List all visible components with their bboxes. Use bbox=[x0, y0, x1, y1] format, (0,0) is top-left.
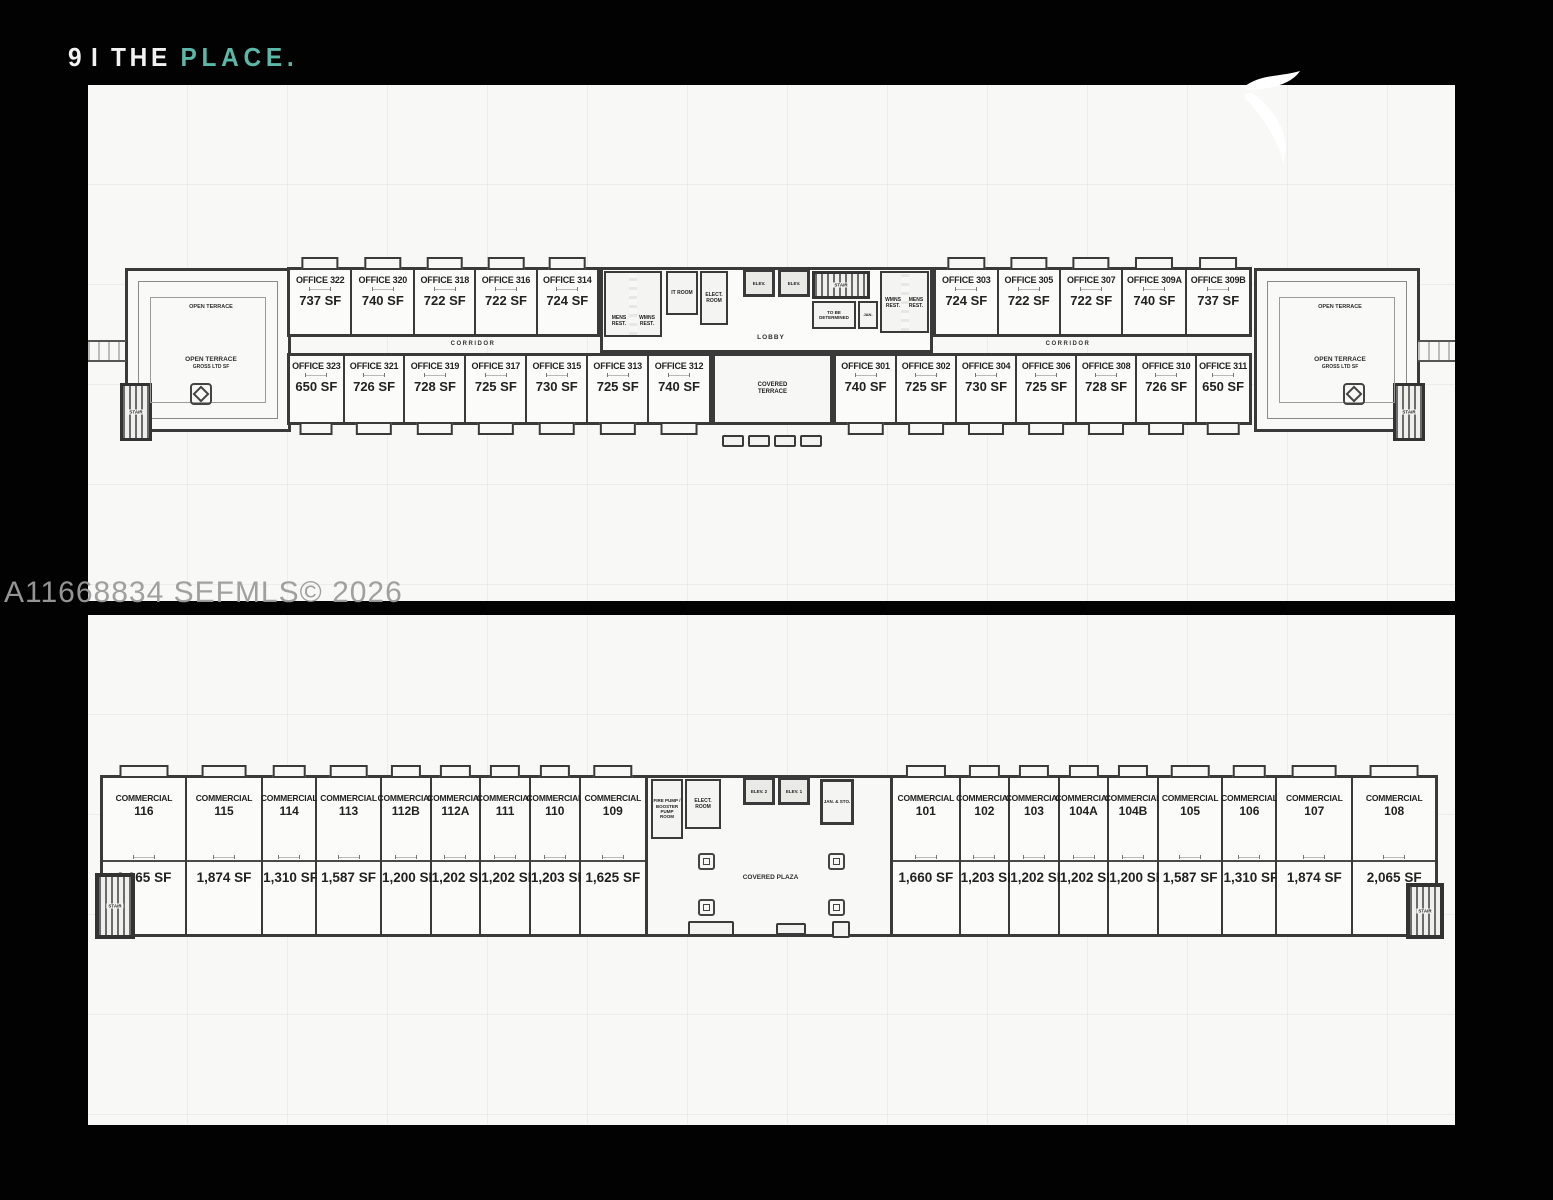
swoosh-logo-icon bbox=[1238, 70, 1304, 166]
planter bbox=[800, 435, 822, 447]
room-area: 730 SF bbox=[536, 379, 578, 394]
commercial-row-left: COMMERCIAL1162,065 SFCOMMERCIAL1151,874 … bbox=[100, 775, 648, 937]
dimension-mark bbox=[1212, 373, 1234, 377]
room-office-312: OFFICE 312740 SF bbox=[649, 356, 709, 422]
to-be-determined-room: TO BE DETERMINED bbox=[812, 301, 856, 329]
covered-plaza-label: COVERED PLAZA bbox=[723, 873, 818, 882]
room-label: COMMERCIAL104B bbox=[1105, 778, 1162, 819]
room-label: OFFICE 315 bbox=[532, 361, 581, 371]
room-area: 724 SF bbox=[945, 293, 987, 308]
room-area: 1,587 SF bbox=[1159, 860, 1222, 934]
dimension-mark bbox=[1207, 287, 1229, 291]
room-label: OFFICE 319 bbox=[411, 361, 460, 371]
planter bbox=[832, 921, 850, 938]
room-office-315: OFFICE 315730 SF bbox=[527, 356, 588, 422]
stair-left: STAIR bbox=[120, 383, 152, 441]
room-area: 1,200 SF bbox=[1109, 860, 1156, 934]
room-commercial-115: COMMERCIAL1151,874 SF bbox=[187, 778, 263, 934]
dimension-mark bbox=[915, 373, 937, 377]
walkway-pier-right bbox=[1418, 340, 1455, 362]
mls-watermark: A11668834 SEFMLS© 2026 bbox=[4, 576, 403, 610]
room-area: 1,660 SF bbox=[893, 860, 959, 934]
room-label: OFFICE 311 bbox=[1199, 361, 1247, 371]
room-area: 725 SF bbox=[1025, 379, 1067, 394]
room-commercial-114: COMMERCIAL1141,310 SF bbox=[263, 778, 317, 934]
room-label: OFFICE 313 bbox=[593, 361, 642, 371]
dimension-mark bbox=[444, 855, 466, 859]
dimension-mark bbox=[1238, 855, 1260, 859]
room-label: OFFICE 320 bbox=[359, 275, 408, 285]
janitor-storage-room: JAN. & STO. bbox=[820, 779, 854, 825]
dimension-mark bbox=[1122, 855, 1144, 859]
column-icon bbox=[828, 853, 845, 870]
room-label: OFFICE 308 bbox=[1082, 361, 1131, 371]
elevator-icon: ELEV. 2 bbox=[743, 777, 775, 805]
room-area: 722 SF bbox=[485, 293, 527, 308]
office-row-bottom-left: OFFICE 323650 SFOFFICE 321726 SFOFFICE 3… bbox=[287, 353, 712, 425]
room-label: COMMERCIAL101 bbox=[898, 778, 955, 819]
room-label: COMMERCIAL108 bbox=[1366, 778, 1423, 819]
room-area: 725 SF bbox=[475, 379, 517, 394]
room-area: 1,202 SF bbox=[1060, 860, 1108, 934]
room-area: 724 SF bbox=[546, 293, 588, 308]
elevator-bank: ELEV. ELEV. bbox=[743, 269, 810, 297]
room-commercial-104a: COMMERCIAL104A1,202 SF bbox=[1060, 778, 1110, 934]
room-label: COMMERCIAL104A bbox=[1055, 778, 1112, 819]
room-label: COMMERCIAL116 bbox=[116, 778, 173, 819]
room-area: 722 SF bbox=[1008, 293, 1050, 308]
room-area: 737 SF bbox=[1197, 293, 1239, 308]
room-commercial-111: COMMERCIAL1111,202 SF bbox=[481, 778, 531, 934]
covered-terrace: COVERED TERRACE bbox=[712, 353, 833, 425]
planter bbox=[748, 435, 770, 447]
dimension-mark bbox=[556, 287, 578, 291]
room-area: 1,200 SF bbox=[382, 860, 430, 934]
room-office-318: OFFICE 318722 SF bbox=[415, 270, 476, 334]
room-area: 728 SF bbox=[414, 379, 456, 394]
column-ornament-icon bbox=[1343, 383, 1365, 405]
room-area: 722 SF bbox=[1070, 293, 1112, 308]
it-room: IT ROOM bbox=[666, 271, 698, 315]
room-office-319: OFFICE 319728 SF bbox=[405, 356, 466, 422]
column-icon bbox=[698, 853, 715, 870]
dimension-mark bbox=[544, 855, 566, 859]
title-divider: I bbox=[91, 42, 102, 73]
room-area: 725 SF bbox=[597, 379, 639, 394]
lobby-label: LOBBY bbox=[736, 333, 806, 342]
open-terrace-label: OPEN TERRACE GROSS LTD SF bbox=[146, 355, 276, 371]
title-accent: PLACE. bbox=[181, 42, 299, 72]
room-label: COMMERCIAL115 bbox=[196, 778, 253, 819]
room-commercial-107: COMMERCIAL1071,874 SF bbox=[1277, 778, 1353, 934]
room-label: COMMERCIAL110 bbox=[526, 778, 583, 819]
room-office-316: OFFICE 316722 SF bbox=[476, 270, 537, 334]
dimension-mark bbox=[602, 855, 624, 859]
stair-left: STAIR bbox=[95, 873, 135, 939]
room-label: OFFICE 316 bbox=[482, 275, 531, 285]
dimension-mark bbox=[668, 373, 690, 377]
dimension-mark bbox=[1179, 855, 1201, 859]
room-area: 1,874 SF bbox=[187, 860, 261, 934]
room-label: OFFICE 309A bbox=[1127, 275, 1182, 285]
dimension-mark bbox=[1035, 373, 1057, 377]
room-commercial-112b: COMMERCIAL112B1,200 SF bbox=[382, 778, 432, 934]
core-stair: STAIR bbox=[812, 271, 870, 299]
title-word: THE bbox=[111, 42, 171, 72]
room-area: 1,202 SF bbox=[1010, 860, 1058, 934]
room-label: OFFICE 317 bbox=[472, 361, 521, 371]
page-title: 9ITHEPLACE. bbox=[68, 42, 298, 73]
room-area: 726 SF bbox=[353, 379, 395, 394]
title-number: 9 bbox=[68, 42, 85, 72]
room-commercial-109: COMMERCIAL1091,625 SF bbox=[581, 778, 645, 934]
room-office-322: OFFICE 322737 SF bbox=[290, 270, 352, 334]
room-label: COMMERCIAL112A bbox=[427, 778, 484, 819]
dimension-mark bbox=[338, 855, 360, 859]
room-office-305: OFFICE 305722 SF bbox=[999, 270, 1061, 334]
elect-room: ELECT. ROOM bbox=[685, 779, 721, 829]
dimension-mark bbox=[309, 287, 331, 291]
room-office-309a: OFFICE 309A740 SF bbox=[1123, 270, 1187, 334]
room-label: OFFICE 307 bbox=[1067, 275, 1116, 285]
dimension-mark bbox=[915, 855, 937, 859]
dimension-mark bbox=[1073, 855, 1095, 859]
elect-room: ELECT. ROOM bbox=[700, 271, 728, 325]
room-office-323: OFFICE 323650 SF bbox=[290, 356, 345, 422]
column-ornament-icon bbox=[190, 383, 212, 405]
column-icon bbox=[828, 899, 845, 916]
room-label: OFFICE 321 bbox=[350, 361, 399, 371]
room-commercial-105: COMMERCIAL1051,587 SF bbox=[1159, 778, 1224, 934]
room-label: OFFICE 301 bbox=[841, 361, 890, 371]
walkway-pier-left bbox=[88, 340, 126, 362]
room-area: 728 SF bbox=[1085, 379, 1127, 394]
dimension-mark bbox=[975, 373, 997, 377]
room-office-314: OFFICE 314724 SF bbox=[538, 270, 597, 334]
room-office-304: OFFICE 304730 SF bbox=[957, 356, 1017, 422]
room-label: COMMERCIAL107 bbox=[1286, 778, 1343, 819]
dimension-mark bbox=[434, 287, 456, 291]
open-terrace-label: OPEN TERRACE bbox=[1285, 304, 1395, 312]
room-commercial-104b: COMMERCIAL104B1,200 SF bbox=[1109, 778, 1158, 934]
room-label: OFFICE 304 bbox=[962, 361, 1011, 371]
dimension-mark bbox=[855, 373, 877, 377]
room-office-303: OFFICE 303724 SF bbox=[936, 270, 999, 334]
room-area: 725 SF bbox=[905, 379, 947, 394]
elevator-icon: ELEV. bbox=[778, 269, 810, 297]
dimension-mark bbox=[495, 287, 517, 291]
room-label: COMMERCIAL113 bbox=[320, 778, 377, 819]
room-area: 1,587 SF bbox=[317, 860, 380, 934]
commercial-floor-plan-sheet: COMMERCIAL1162,065 SFCOMMERCIAL1151,874 … bbox=[88, 615, 1455, 1125]
restrooms-east: WMNS REST. MENS REST. bbox=[880, 271, 929, 333]
room-area: 722 SF bbox=[424, 293, 466, 308]
room-area: 650 SF bbox=[1202, 379, 1244, 394]
room-office-308: OFFICE 308728 SF bbox=[1077, 356, 1137, 422]
room-area: 1,874 SF bbox=[1277, 860, 1351, 934]
dimension-mark bbox=[1155, 373, 1177, 377]
dimension-mark bbox=[305, 373, 327, 377]
elevator-bank: ELEV. 2 ELEV. 1 bbox=[743, 777, 810, 805]
dimension-mark bbox=[1018, 287, 1040, 291]
stair-right: STAIR bbox=[1406, 883, 1444, 939]
right-terrace-wing: OPEN TERRACE OPEN TERRACE GROSS LTD SF S… bbox=[1254, 268, 1420, 432]
dimension-mark bbox=[973, 855, 995, 859]
room-commercial-110: COMMERCIAL1101,203 SF bbox=[531, 778, 581, 934]
dimension-mark bbox=[395, 855, 417, 859]
dimension-mark bbox=[607, 373, 629, 377]
room-area: 740 SF bbox=[1133, 293, 1175, 308]
office-row-top-left: OFFICE 322737 SFOFFICE 320740 SFOFFICE 3… bbox=[287, 267, 600, 337]
room-label: COMMERCIAL105 bbox=[1162, 778, 1219, 819]
open-terrace-label: OPEN TERRACE bbox=[156, 304, 266, 312]
office-row-bottom-right: OFFICE 301740 SFOFFICE 302725 SFOFFICE 3… bbox=[833, 353, 1252, 425]
dimension-mark bbox=[213, 855, 235, 859]
room-office-302: OFFICE 302725 SF bbox=[897, 356, 957, 422]
dimension-mark bbox=[1023, 855, 1045, 859]
room-area: 650 SF bbox=[295, 379, 337, 394]
room-office-320: OFFICE 320740 SF bbox=[352, 270, 415, 334]
dimension-mark bbox=[363, 373, 385, 377]
left-terrace-wing: OPEN TERRACE OPEN TERRACE GROSS LTD SF S… bbox=[125, 268, 291, 432]
room-area: 737 SF bbox=[299, 293, 341, 308]
janitor-room: JAN. bbox=[858, 301, 878, 329]
room-commercial-102: COMMERCIAL1021,203 SF bbox=[961, 778, 1011, 934]
room-area: 730 SF bbox=[965, 379, 1007, 394]
planter bbox=[776, 923, 806, 935]
room-label: COMMERCIAL112B bbox=[378, 778, 435, 819]
room-label: OFFICE 318 bbox=[421, 275, 470, 285]
room-label: OFFICE 302 bbox=[902, 361, 951, 371]
room-label: COMMERCIAL109 bbox=[585, 778, 642, 819]
room-label: OFFICE 305 bbox=[1005, 275, 1054, 285]
room-office-307: OFFICE 307722 SF bbox=[1061, 270, 1123, 334]
room-office-306: OFFICE 306725 SF bbox=[1017, 356, 1077, 422]
room-office-317: OFFICE 317725 SF bbox=[466, 356, 527, 422]
room-office-321: OFFICE 321726 SF bbox=[345, 356, 406, 422]
room-area: 1,203 SF bbox=[531, 860, 579, 934]
restrooms-west: MENS REST. WMNS REST. bbox=[604, 271, 662, 337]
commercial-row-right: COMMERCIAL1011,660 SFCOMMERCIAL1021,203 … bbox=[890, 775, 1438, 937]
room-label: COMMERCIAL106 bbox=[1221, 778, 1278, 819]
room-label: COMMERCIAL102 bbox=[956, 778, 1013, 819]
room-area: 726 SF bbox=[1145, 379, 1187, 394]
dimension-mark bbox=[1303, 855, 1325, 859]
planter bbox=[774, 435, 796, 447]
planter bbox=[688, 921, 734, 936]
room-area: 740 SF bbox=[362, 293, 404, 308]
room-label: OFFICE 322 bbox=[296, 275, 345, 285]
corridor-label-left: CORRIDOR bbox=[398, 341, 548, 347]
room-label: OFFICE 310 bbox=[1142, 361, 1191, 371]
dimension-mark bbox=[955, 287, 977, 291]
dimension-mark bbox=[1143, 287, 1165, 291]
room-area: 1,202 SF bbox=[432, 860, 480, 934]
room-label: OFFICE 312 bbox=[655, 361, 704, 371]
dimension-mark bbox=[278, 855, 300, 859]
room-commercial-103: COMMERCIAL1031,202 SF bbox=[1010, 778, 1060, 934]
dimension-mark bbox=[1095, 373, 1117, 377]
room-office-301: OFFICE 301740 SF bbox=[836, 356, 897, 422]
column-icon bbox=[698, 899, 715, 916]
room-office-309b: OFFICE 309B737 SF bbox=[1187, 270, 1249, 334]
room-label: OFFICE 303 bbox=[942, 275, 991, 285]
room-label: COMMERCIAL114 bbox=[261, 778, 318, 819]
room-area: 740 SF bbox=[658, 379, 700, 394]
room-label: COMMERCIAL111 bbox=[477, 778, 534, 819]
room-commercial-112a: COMMERCIAL112A1,202 SF bbox=[432, 778, 482, 934]
open-terrace-label: OPEN TERRACE GROSS LTD SF bbox=[1275, 355, 1405, 371]
dimension-mark bbox=[372, 287, 394, 291]
room-office-313: OFFICE 313725 SF bbox=[588, 356, 649, 422]
elevator-icon: ELEV. bbox=[743, 269, 775, 297]
dimension-mark bbox=[424, 373, 446, 377]
corridor-label-right: CORRIDOR bbox=[993, 341, 1143, 347]
room-commercial-113: COMMERCIAL1131,587 SF bbox=[317, 778, 382, 934]
room-area: 1,625 SF bbox=[581, 860, 645, 934]
room-area: 740 SF bbox=[845, 379, 887, 394]
room-office-310: OFFICE 310726 SF bbox=[1137, 356, 1197, 422]
room-label: COMMERCIAL103 bbox=[1006, 778, 1063, 819]
fire-pump-room: FIRE PUMP / BOOSTER PUMP ROOM bbox=[651, 779, 683, 839]
room-label: OFFICE 309B bbox=[1191, 275, 1246, 285]
room-label: OFFICE 323 bbox=[292, 361, 341, 371]
dimension-mark bbox=[485, 373, 507, 377]
dimension-mark bbox=[133, 855, 155, 859]
dimension-mark bbox=[1383, 855, 1405, 859]
stair-right: STAIR bbox=[1393, 383, 1425, 441]
room-office-311: OFFICE 311650 SF bbox=[1197, 356, 1249, 422]
dimension-mark bbox=[546, 373, 568, 377]
room-label: OFFICE 306 bbox=[1022, 361, 1071, 371]
room-commercial-106: COMMERCIAL1061,310 SF bbox=[1223, 778, 1277, 934]
dimension-mark bbox=[1080, 287, 1102, 291]
room-commercial-101: COMMERCIAL1011,660 SF bbox=[893, 778, 961, 934]
room-area: 1,310 SF bbox=[1223, 860, 1275, 934]
office-row-top-right: OFFICE 303724 SFOFFICE 305722 SFOFFICE 3… bbox=[933, 267, 1252, 337]
room-area: 1,203 SF bbox=[961, 860, 1009, 934]
room-area: 1,202 SF bbox=[481, 860, 529, 934]
room-label: OFFICE 314 bbox=[543, 275, 592, 285]
room-area: 1,310 SF bbox=[263, 860, 315, 934]
dimension-mark bbox=[494, 855, 516, 859]
planter bbox=[722, 435, 744, 447]
elevator-icon: ELEV. 1 bbox=[778, 777, 810, 805]
